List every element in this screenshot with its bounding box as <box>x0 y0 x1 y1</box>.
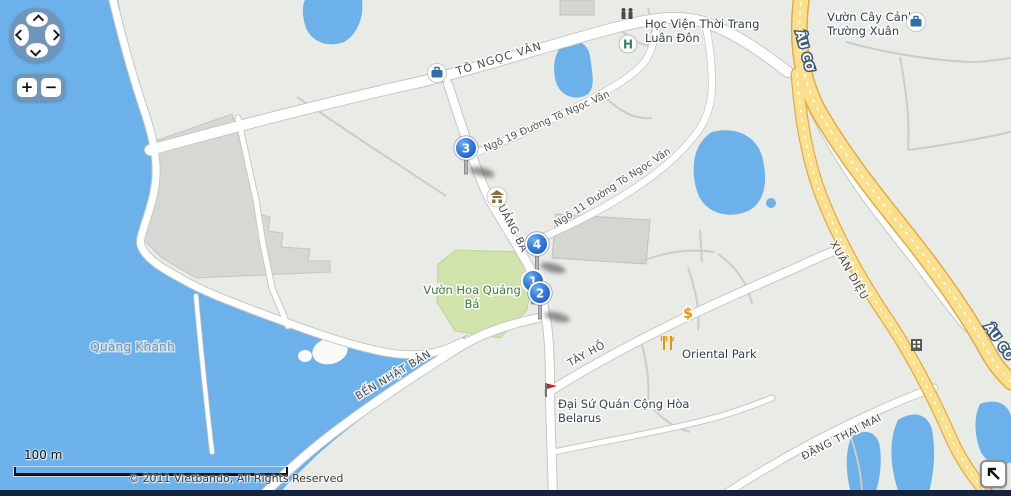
zoom-in-button[interactable]: + <box>17 78 37 97</box>
building-icon <box>911 339 922 351</box>
poi-embassy-line1: Đại Sứ Quán Cộng Hòa <box>558 397 689 411</box>
bag-icon <box>907 13 926 32</box>
chevron-left-icon <box>14 29 25 40</box>
svg-text:H: H <box>623 38 633 52</box>
bottom-bar <box>0 490 1011 496</box>
poi-hoc-vien-line1: Học Viện Thời Trang <box>645 17 759 31</box>
poi-quang-khanh: Quảng Khánh <box>90 339 175 354</box>
expand-arrow-icon <box>985 465 1003 483</box>
poi-embassy-line2: Belarus <box>558 411 601 425</box>
pan-up-button[interactable] <box>26 12 48 27</box>
money-icon: $ <box>683 306 693 322</box>
svg-text:4: 4 <box>533 238 541 252</box>
poi-hoc-vien-line2: Luân Đôn <box>645 31 700 45</box>
temple-icon <box>487 187 507 207</box>
svg-text:2: 2 <box>536 287 544 301</box>
poi-oriental-park: Oriental Park <box>682 347 757 361</box>
poi-vuon-hoa-line2: Bá <box>465 297 480 311</box>
pan-left-button[interactable] <box>14 24 29 46</box>
pan-control <box>10 8 64 62</box>
map-tiles: TÔ NGỌC VÂN Ngõ 19 Đường Tô Ngọc Vân Ngõ… <box>0 0 1011 496</box>
zoom-out-button[interactable]: − <box>41 78 61 97</box>
zoom-control: + − <box>13 74 65 101</box>
poi-vuon-cay-line2: Trường Xuân <box>826 24 899 38</box>
chevron-right-icon <box>48 29 59 40</box>
poi-vuon-hoa-line1: Vườn Hoa Quảng <box>423 283 521 297</box>
pan-down-button[interactable] <box>26 43 48 58</box>
chevron-up-icon <box>33 14 44 25</box>
svg-text:3: 3 <box>462 142 470 156</box>
chevron-down-icon <box>30 45 41 56</box>
expand-button[interactable] <box>980 460 1007 488</box>
pan-right-button[interactable] <box>45 24 60 46</box>
scale-label: 100 m <box>24 448 62 462</box>
hospital-icon: H <box>619 35 637 53</box>
copyright-text: © 2011 Vietbando, All Rights Reserved <box>128 472 343 485</box>
briefcase-icon <box>428 64 447 83</box>
poi-vuon-cay-line1: Vườn Cây Cảnh <box>827 10 915 24</box>
